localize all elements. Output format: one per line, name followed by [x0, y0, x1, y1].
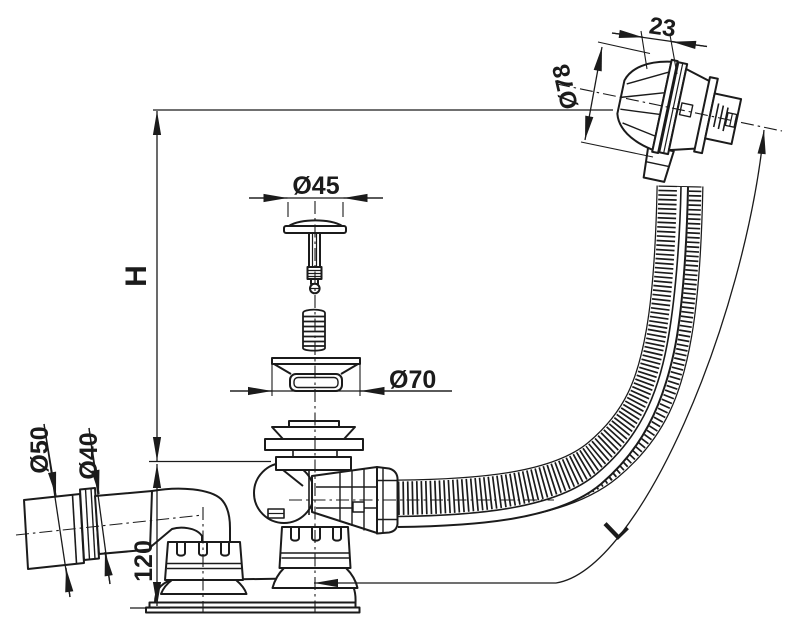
left-locking-nut: [165, 542, 243, 580]
overflow-head: [606, 51, 747, 194]
plug-spring: [303, 310, 325, 351]
label-d50: Ø50: [26, 426, 54, 473]
drain-flange: [265, 421, 363, 450]
label-120: 120: [130, 540, 158, 582]
corrugated-hose: [398, 186, 688, 527]
technical-drawing-page: H 120 Ø50 Ø40 Ø45 Ø70 23 Ø78 L: [0, 0, 800, 634]
technical-drawing-canvas: H 120 Ø50 Ø40 Ø45 Ø70 23 Ø78 L: [0, 0, 800, 634]
dimension-d45: [249, 198, 383, 217]
label-d78: Ø78: [547, 62, 584, 112]
waste-flange: [272, 358, 360, 391]
label-L: L: [598, 510, 634, 546]
label-d70: Ø70: [389, 366, 436, 394]
left-flare: [161, 580, 247, 594]
label-23: 23: [647, 12, 677, 42]
label-d45: Ø45: [292, 172, 339, 200]
label-H: H: [120, 265, 153, 287]
label-d40: Ø40: [75, 432, 103, 479]
dimension-H: [149, 110, 613, 462]
